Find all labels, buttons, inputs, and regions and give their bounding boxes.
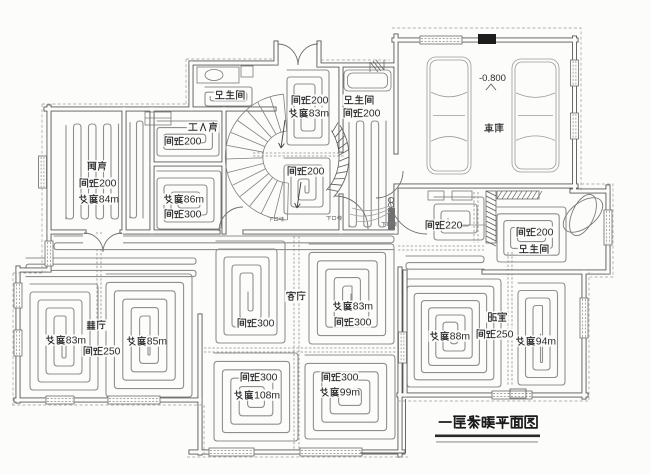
svg-text:200: 200 [311,96,329,107]
svg-text:99m: 99m [340,388,360,399]
svg-text:200: 200 [307,167,325,178]
svg-text:86m: 86m [184,195,204,206]
svg-text:83m: 83m [309,109,329,120]
svg-text:220: 220 [445,221,463,232]
svg-text:84m: 84m [99,195,119,206]
svg-text:250: 250 [103,347,121,358]
svg-text:108m: 108m [254,391,280,402]
svg-text:200: 200 [99,179,117,190]
svg-text:200: 200 [184,137,202,148]
svg-text:200: 200 [536,228,554,239]
svg-text:-0.800: -0.800 [479,73,506,84]
svg-text:300: 300 [354,318,372,329]
svg-text:300: 300 [184,210,202,221]
svg-text:88m: 88m [450,332,470,343]
svg-text:300: 300 [257,319,275,330]
svg-text:94m: 94m [536,337,556,348]
svg-text:300: 300 [260,373,278,384]
svg-text:83m: 83m [353,302,373,313]
svg-text:85m: 85m [147,337,167,348]
svg-text:83m: 83m [66,336,86,347]
svg-text:300: 300 [341,373,359,384]
svg-text:200: 200 [363,109,381,120]
svg-text:250: 250 [496,330,514,341]
